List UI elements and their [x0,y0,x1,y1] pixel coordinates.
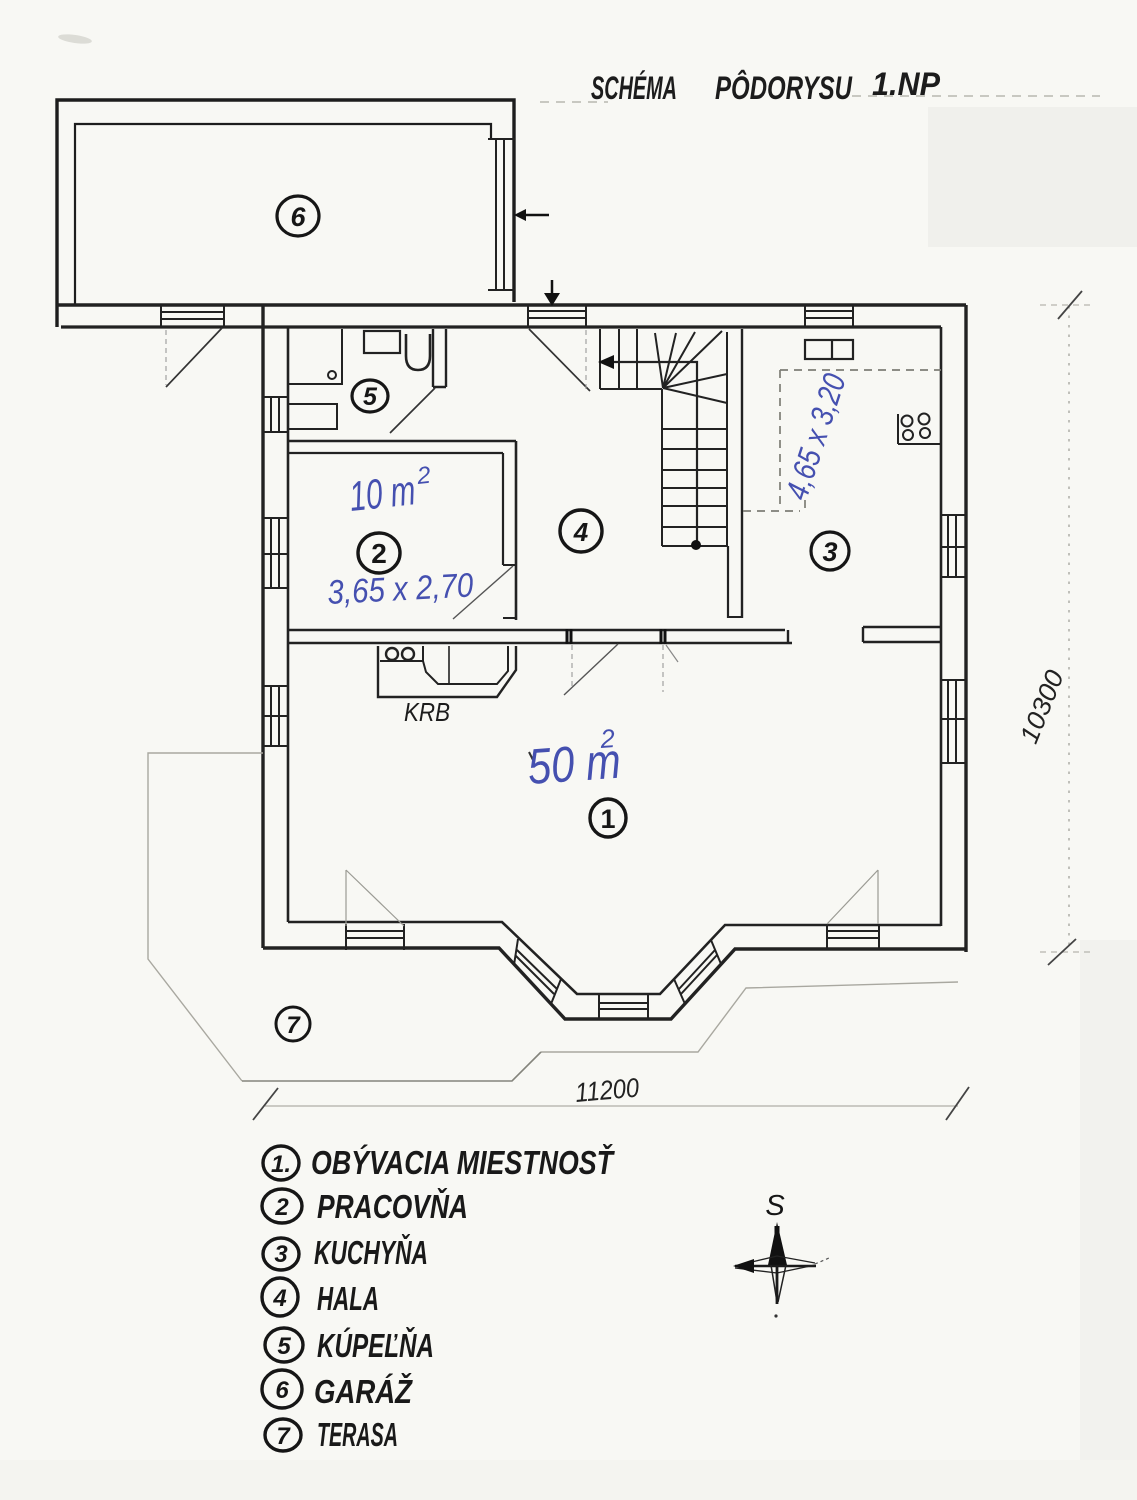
svg-text:7: 7 [286,1012,301,1039]
svg-text:3,65 x 2,70: 3,65 x 2,70 [326,566,474,612]
svg-text:1.NP: 1.NP [872,66,941,102]
svg-text:KRB: KRB [404,697,450,727]
svg-text:5: 5 [363,383,378,411]
svg-text:7: 7 [276,1423,291,1450]
svg-text:KÚPEĽŇA: KÚPEĽŇA [317,1327,434,1364]
svg-text:6: 6 [290,202,306,232]
svg-text:10 m: 10 m [347,466,418,520]
svg-text:2: 2 [371,538,387,569]
svg-text:1.: 1. [271,1151,291,1178]
svg-text:S: S [765,1190,785,1222]
svg-text:3: 3 [274,1241,288,1268]
svg-text:1: 1 [600,804,615,834]
svg-text:11200: 11200 [574,1073,640,1108]
svg-text:OBÝVACIA MIESTNOSŤ: OBÝVACIA MIESTNOSŤ [311,1144,615,1181]
svg-text:2: 2 [598,723,616,754]
svg-text:4: 4 [272,1285,286,1312]
svg-text:SCHÉMA: SCHÉMA [591,70,677,106]
svg-text:2: 2 [415,462,432,490]
svg-text:KUCHYŇA: KUCHYŇA [314,1234,428,1271]
svg-text:HALA: HALA [317,1280,379,1317]
svg-text:3: 3 [822,537,837,567]
svg-text:GARÁŽ: GARÁŽ [314,1373,414,1410]
svg-text:4: 4 [573,517,589,547]
svg-text:PÔDORYSU: PÔDORYSU [715,70,853,106]
svg-text:2: 2 [274,1194,289,1221]
svg-text:TERASA: TERASA [317,1416,398,1453]
svg-text:5: 5 [277,1333,291,1360]
svg-text:PRACOVŇA: PRACOVŇA [317,1188,468,1225]
svg-text:6: 6 [275,1377,289,1404]
